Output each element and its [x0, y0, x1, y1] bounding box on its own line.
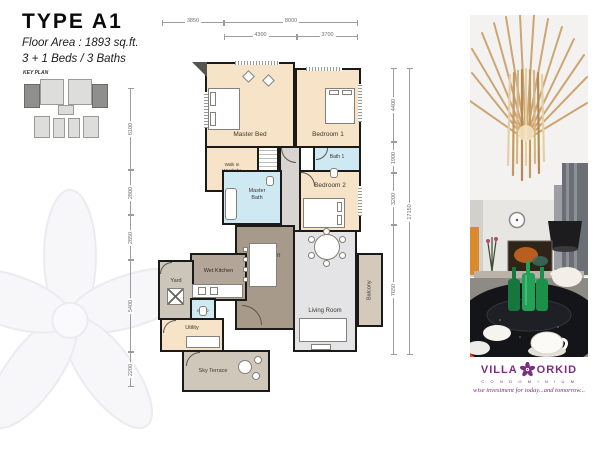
- dimension-right: 7650: [393, 225, 394, 355]
- dining-chair: [308, 252, 315, 259]
- window: [358, 186, 362, 216]
- beds-baths-text: 3 + 1 Beds / 3 Baths: [22, 53, 126, 65]
- dimension-value: 4400: [391, 97, 397, 113]
- pillow: [329, 90, 339, 95]
- key-plan-unit: [68, 79, 92, 105]
- dimension-left: 2800: [130, 170, 131, 215]
- dimension-top: 3700: [297, 36, 358, 37]
- dining-chair: [339, 236, 346, 243]
- dimension-value: 7650: [391, 282, 397, 298]
- dimension-value: 17150: [407, 202, 413, 221]
- window: [204, 92, 208, 128]
- dimension-top: 4300: [224, 36, 297, 37]
- dining-chair: [308, 236, 315, 243]
- brand-block: VILLA ORKID C O N D O M I N I U M wise i…: [470, 362, 588, 394]
- page-title: TYPE A1: [22, 10, 123, 34]
- floor-area-text: Floor Area : 1893 sq.ft.: [22, 37, 139, 49]
- pillow: [210, 112, 216, 126]
- brand-tagline: wise investment for today...and tomorrow…: [470, 387, 588, 394]
- washing-machine: [167, 288, 184, 305]
- dimension-value: 2850: [128, 229, 134, 245]
- dimension-left: 2200: [130, 352, 131, 387]
- key-plan: [20, 76, 112, 142]
- pillow: [210, 92, 216, 106]
- interior-photo: [470, 15, 588, 357]
- dining-chair: [339, 252, 346, 259]
- key-plan-core: [58, 105, 74, 115]
- key-plan-unit: [68, 118, 80, 138]
- dimension-left: 6100: [130, 88, 131, 170]
- dimension-right: 3200: [393, 173, 394, 225]
- dimension-top: 3850: [162, 22, 224, 23]
- dimension-value: 5400: [128, 298, 134, 314]
- bar-stool: [243, 267, 248, 272]
- dimension-value: 4300: [252, 32, 268, 38]
- kitchen-island: [249, 243, 277, 287]
- bar-stool: [243, 277, 248, 282]
- dimension-right: 4400: [393, 68, 394, 142]
- planter-wedge: [192, 62, 207, 77]
- bar-stool: [243, 257, 248, 262]
- room-balcony: Balcony: [357, 253, 383, 327]
- dimension-value: 2200: [128, 361, 134, 377]
- brand-orkid-text: ORKID: [537, 364, 577, 376]
- toilet: [266, 176, 274, 186]
- key-plan-unit: [40, 79, 64, 105]
- room-label-living-room: Living Room: [295, 308, 355, 316]
- window: [306, 67, 342, 71]
- bathtub: [225, 188, 237, 220]
- room-label-yard: Yard: [160, 278, 192, 285]
- window: [235, 61, 279, 65]
- brand-villa-text: VILLA: [481, 364, 518, 376]
- toilet: [199, 306, 207, 316]
- room-label-wet-kitchen: Wet Kitchen: [192, 268, 245, 275]
- room-label-master-bath: Master Bath: [244, 188, 270, 202]
- dimension-value: 8000: [283, 18, 299, 24]
- brand-condominium-text: C O N D O M I N I U M: [470, 379, 588, 384]
- dimension-value: 2800: [128, 184, 134, 200]
- sink: [198, 287, 206, 295]
- pillow: [337, 215, 342, 225]
- coffee-table: [311, 344, 331, 350]
- dining-chair: [323, 228, 330, 235]
- toilet: [330, 168, 338, 178]
- pillow: [337, 202, 342, 212]
- dimension-right: 1900: [393, 142, 394, 173]
- dimension-right-total: 17150: [409, 68, 410, 355]
- terrace-chair: [252, 372, 260, 380]
- dining-table: [314, 234, 340, 260]
- sink: [210, 287, 218, 295]
- key-plan-unit: [34, 116, 50, 138]
- dimension-value: 3700: [319, 32, 335, 38]
- sofa: [299, 318, 347, 342]
- dimension-left: 2850: [130, 215, 131, 260]
- dimension-value: 3200: [391, 191, 397, 207]
- terrace-chair: [254, 356, 262, 364]
- dimension-value: 6100: [128, 121, 134, 137]
- key-plan-unit-highlighted: [24, 84, 40, 108]
- key-plan-unit: [53, 118, 65, 138]
- terrace-table: [238, 360, 252, 374]
- dimension-left: 5400: [130, 260, 131, 352]
- orchid-logo-icon: [520, 362, 535, 377]
- dimension-value: 3850: [185, 18, 201, 24]
- dimension-top: 8000: [224, 22, 358, 23]
- room-label-balcony: Balcony: [359, 255, 381, 325]
- pillow: [342, 90, 352, 95]
- key-plan-unit: [83, 116, 99, 138]
- window: [358, 84, 362, 122]
- dining-chair: [323, 260, 330, 267]
- room-label-master-bed: Master Bed: [207, 131, 293, 139]
- dimension-value: 1900: [391, 149, 397, 165]
- key-plan-unit-highlighted: [92, 84, 108, 108]
- utility-bed: [186, 336, 220, 348]
- room-label-bedroom-1: Bedroom 1: [297, 131, 359, 139]
- bar-stool: [243, 247, 248, 252]
